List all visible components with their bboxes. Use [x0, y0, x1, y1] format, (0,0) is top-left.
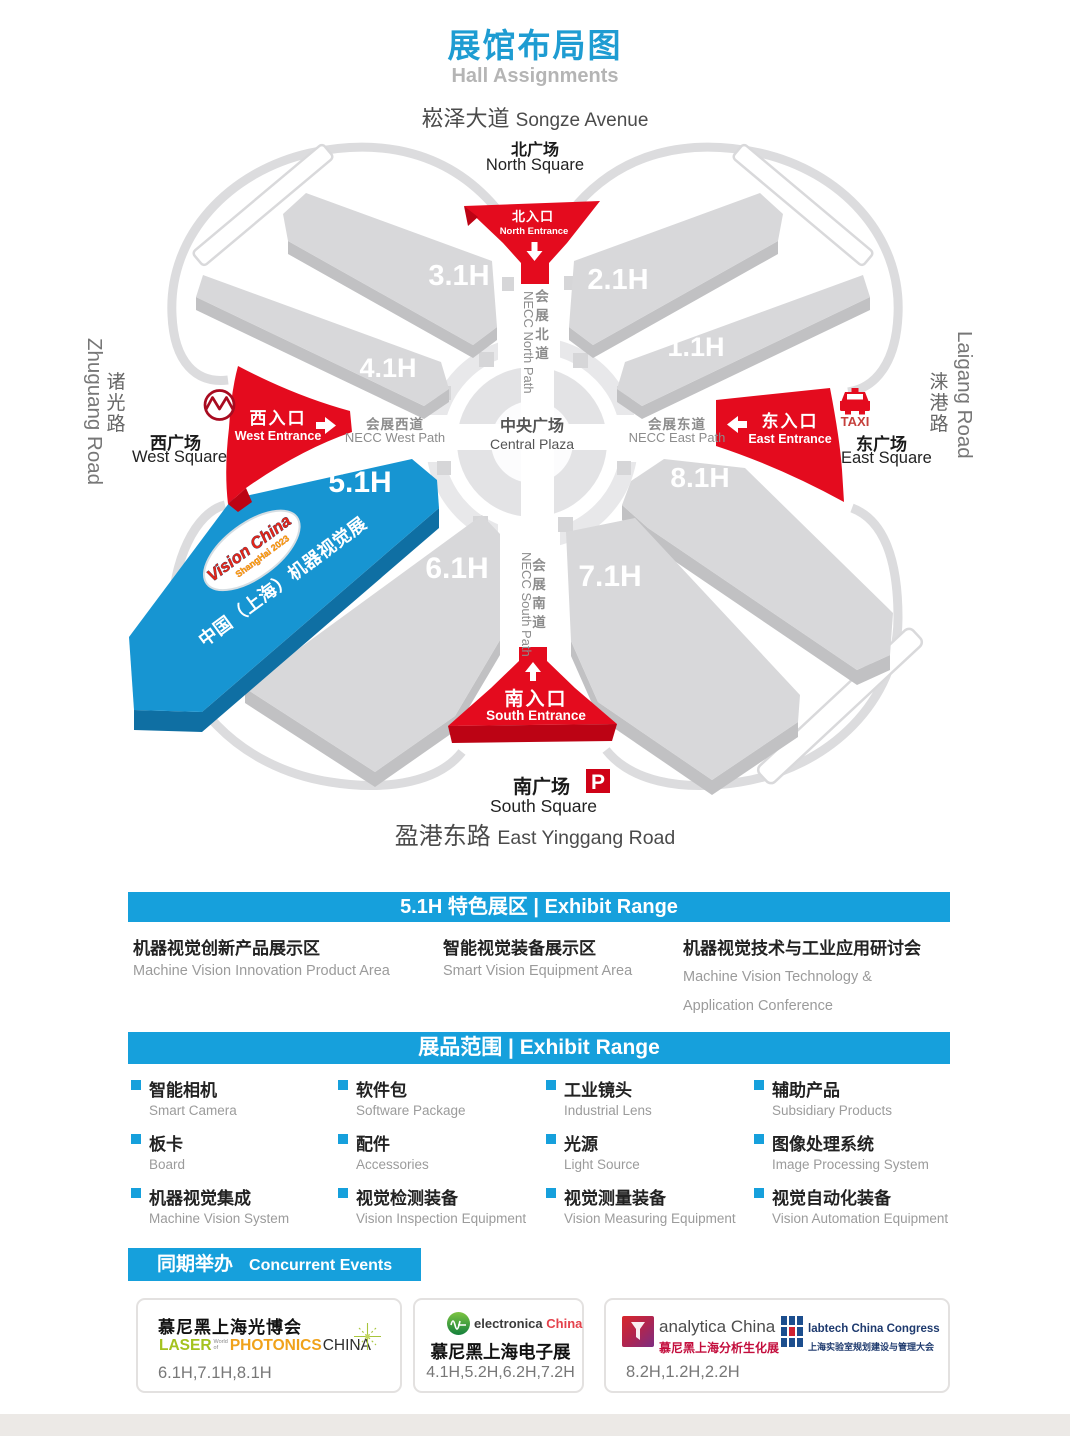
svg-text:2.1H: 2.1H [587, 264, 648, 296]
svg-text:NECC West Path: NECC West Path [345, 430, 445, 445]
svg-text:North Entrance: North Entrance [500, 226, 569, 237]
svg-text:TAXI: TAXI [841, 414, 870, 429]
svg-text:7.1H: 7.1H [578, 560, 641, 593]
svg-text:West Entrance: West Entrance [235, 429, 322, 443]
svg-text:1.1H: 1.1H [667, 332, 724, 362]
svg-text:中央广场: 中央广场 [500, 416, 564, 435]
svg-text:6.1H: 6.1H [425, 552, 488, 585]
svg-text:NECC North Path: NECC North Path [521, 291, 536, 394]
svg-text:Central Plaza: Central Plaza [490, 436, 574, 452]
svg-text:3.1H: 3.1H [428, 260, 489, 292]
svg-text:8.1H: 8.1H [670, 462, 729, 493]
svg-text:South Entrance: South Entrance [486, 708, 586, 723]
svg-text:East Entrance: East Entrance [748, 432, 831, 446]
svg-text:5.1H: 5.1H [328, 466, 391, 499]
svg-text:西入口: 西入口 [250, 409, 307, 428]
svg-text:东入口: 东入口 [762, 411, 819, 431]
svg-text:南入口: 南入口 [504, 688, 567, 710]
svg-text:NECC East Path: NECC East Path [629, 430, 726, 445]
svg-text:北入口: 北入口 [512, 209, 554, 224]
svg-text:P: P [591, 771, 605, 794]
svg-text:NECC South Path: NECC South Path [519, 552, 534, 657]
svg-text:4.1H: 4.1H [359, 353, 416, 383]
